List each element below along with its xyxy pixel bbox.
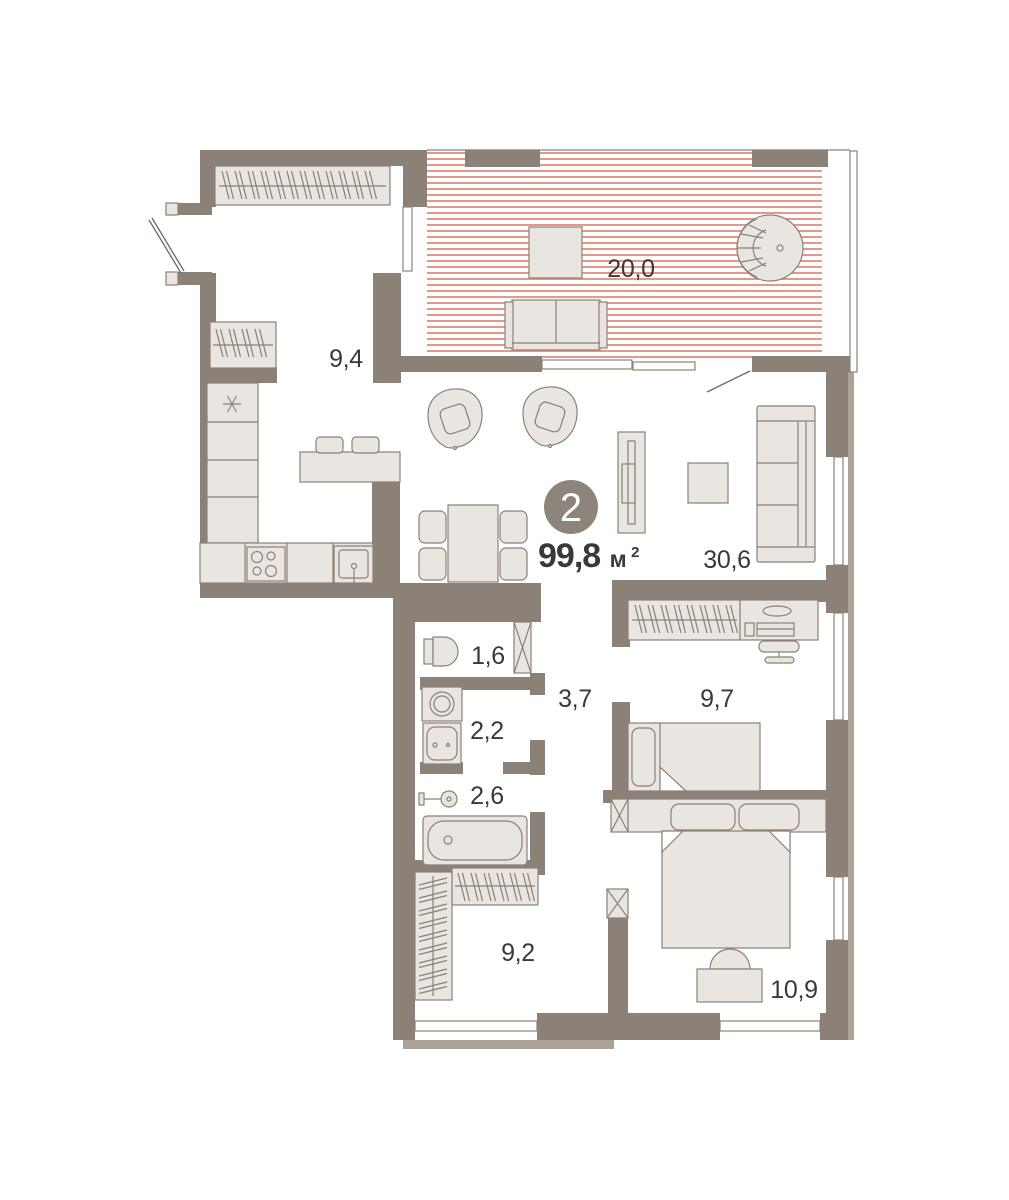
kitchen-counter-column <box>207 383 258 543</box>
wall <box>373 273 401 383</box>
wall <box>612 702 630 725</box>
pillow <box>739 804 799 830</box>
wall <box>400 356 542 372</box>
pillow <box>671 804 735 830</box>
room-label-wc: 1,6 <box>471 642 505 670</box>
vent-shaft <box>607 889 628 918</box>
hanging-round-chair <box>737 215 803 281</box>
room-label-wardrobe-hall: 9,2 <box>501 939 535 967</box>
bedroom-wardrobe <box>628 600 740 640</box>
dining-chair <box>419 548 446 580</box>
kitchen-island <box>300 437 400 482</box>
armchair <box>523 387 577 448</box>
wall <box>612 725 630 790</box>
wall <box>200 583 394 598</box>
terrace-sliding-panel <box>633 362 695 370</box>
terrace-window <box>542 360 632 369</box>
wall-step <box>403 1040 614 1049</box>
total-area-value: 99,8 <box>538 537 600 575</box>
room-label-terrace: 20,0 <box>607 255 654 283</box>
desk <box>740 600 818 663</box>
wall <box>530 812 545 875</box>
tv-stand <box>618 432 645 533</box>
room-label-master-bedroom: 10,9 <box>770 976 817 1004</box>
entrance-door-leaf <box>152 218 184 271</box>
wall <box>372 482 400 583</box>
double-bed <box>628 799 826 948</box>
corridor-wardrobe-vertical <box>415 872 452 1000</box>
total-area-unit: м <box>610 546 627 572</box>
laundry-sink <box>423 723 461 764</box>
dining-chair <box>500 548 527 580</box>
room-label-laundry: 2,2 <box>470 717 504 745</box>
dining-table <box>419 505 527 582</box>
wall <box>612 580 826 602</box>
room-label-bedroom: 9,7 <box>700 685 734 713</box>
bar-stool <box>316 437 343 453</box>
total-area-exponent: 2 <box>631 544 639 561</box>
total-area: 99,8 м 2 <box>538 537 639 575</box>
wall <box>503 762 530 774</box>
wall <box>465 150 540 167</box>
wall-edge <box>848 372 854 1040</box>
shower-mixer-icon <box>419 791 457 807</box>
wall <box>752 150 828 167</box>
wall <box>200 166 216 207</box>
pillow <box>632 728 655 786</box>
entrance-door-leaf <box>149 220 181 273</box>
hall-wardrobe <box>215 166 390 205</box>
terrace-table <box>529 227 582 278</box>
terrace-sofa <box>505 300 607 350</box>
corridor-wardrobe-horizontal <box>452 868 538 905</box>
room-label-kitchen-living: 30,6 <box>703 546 750 574</box>
wall <box>608 917 628 1013</box>
coffee-table <box>688 463 728 503</box>
bathtub <box>423 816 527 865</box>
rooms-count: 2 <box>560 486 582 530</box>
room-label-bathroom: 2,6 <box>470 782 504 810</box>
dining-chair <box>500 511 527 543</box>
desk-chair <box>759 641 799 663</box>
wall <box>537 1013 720 1040</box>
master-bedroom-window-right <box>834 877 843 940</box>
hall-terrace-door <box>403 207 412 271</box>
wall <box>530 673 545 695</box>
floor-plan-svg: 9,4 20,0 30,6 1,6 2,2 2,6 3,7 9,7 9,2 10… <box>0 0 1009 1200</box>
vent-shaft <box>611 799 628 832</box>
washing-machine <box>422 687 462 721</box>
sofa <box>757 406 815 562</box>
wall <box>752 356 853 372</box>
armchair <box>428 389 482 450</box>
wall <box>393 598 415 1013</box>
terrace-door-swing <box>707 371 750 392</box>
room-label-hallway: 3,7 <box>558 685 592 713</box>
vent-shaft <box>514 622 531 673</box>
floorplan-page: 9,4 20,0 30,6 1,6 2,2 2,6 3,7 9,7 9,2 10… <box>0 0 1009 1200</box>
bar-stool <box>352 437 379 453</box>
wall <box>178 272 212 285</box>
hall-small-wardrobe <box>210 322 276 368</box>
wall <box>200 367 277 383</box>
desk-lamp <box>763 606 791 616</box>
kitchen-sink <box>334 546 373 583</box>
wall <box>200 150 427 166</box>
corridor-window <box>415 1021 537 1031</box>
wall <box>403 150 427 207</box>
bedroom-window <box>834 613 843 720</box>
dresser <box>697 949 762 1002</box>
single-bed <box>628 723 760 791</box>
wall <box>530 740 545 775</box>
living-room-window <box>834 457 843 565</box>
wall <box>394 583 541 622</box>
room-label-hall: 9,4 <box>329 345 363 373</box>
dining-chair <box>419 511 446 543</box>
master-bedroom-window-bottom <box>720 1021 820 1031</box>
wall <box>393 1013 415 1040</box>
terrace-glass-rail <box>850 151 857 372</box>
wall <box>178 203 212 215</box>
wall <box>612 602 630 647</box>
toilet <box>424 637 458 666</box>
